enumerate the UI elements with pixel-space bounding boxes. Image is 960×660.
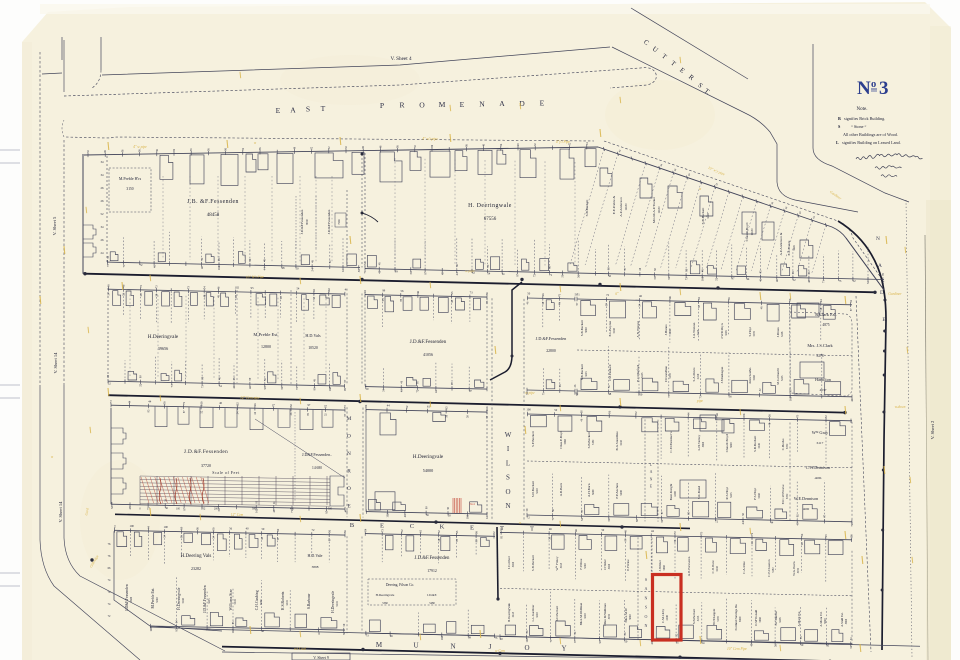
svg-text:5600: 5600 xyxy=(620,490,623,496)
svg-text:67556: 67556 xyxy=(484,217,497,222)
svg-text:5060: 5060 xyxy=(759,616,762,622)
svg-text:N: N xyxy=(347,451,351,457)
svg-text:3248: 3248 xyxy=(758,442,761,448)
svg-text:3445: 3445 xyxy=(585,371,588,377)
svg-text:26: 26 xyxy=(101,238,105,242)
svg-text:26: 26 xyxy=(101,199,105,203)
svg-text:V. Sheet 14: V. Sheet 14 xyxy=(53,352,58,374)
svg-text:w pipe: w pipe xyxy=(525,391,535,395)
svg-text:102: 102 xyxy=(525,638,529,643)
svg-text:3445: 3445 xyxy=(208,598,211,604)
svg-text:M.Preble H'rs: M.Preble H'rs xyxy=(119,176,142,181)
svg-text:H.Deeringvale: H.Deeringvale xyxy=(148,334,179,340)
svg-text:V. Sheet 14: V. Sheet 14 xyxy=(58,501,63,523)
svg-text:E: E xyxy=(460,100,465,109)
svg-text:5260: 5260 xyxy=(753,374,756,380)
svg-text:“ Stone “: “ Stone “ xyxy=(851,124,866,129)
svg-text:O: O xyxy=(419,100,425,109)
svg-text:3240: 3240 xyxy=(584,613,587,619)
svg-text:M.Preble Est.: M.Preble Est. xyxy=(253,332,278,337)
svg-text:17912: 17912 xyxy=(427,569,437,573)
svg-text:7200: 7200 xyxy=(338,219,341,225)
svg-text:10″ W′t Pipe: 10″ W′t Pipe xyxy=(246,275,265,279)
svg-text:37720: 37720 xyxy=(201,463,211,468)
svg-text:T: T xyxy=(321,104,326,113)
svg-text:A.P.Anderson &: A.P.Anderson & xyxy=(779,232,783,255)
svg-text:5245: 5245 xyxy=(560,562,563,568)
svg-text:C.A.Rine: C.A.Rine xyxy=(742,561,746,574)
svg-text:J.D.&F.Fessenden: J.D.&F.Fessenden xyxy=(410,340,447,345)
svg-text:A.H.Born: A.H.Born xyxy=(587,483,591,497)
svg-text:A: A xyxy=(499,99,505,108)
svg-text:J.D.&F.Fessenden: J.D.&F.Fessenden xyxy=(203,585,207,613)
svg-text:U: U xyxy=(413,642,418,650)
svg-text:J.Colliver: J.Colliver xyxy=(507,555,511,569)
svg-text:5245: 5245 xyxy=(697,615,700,621)
svg-text:A.Mark Est.: A.Mark Est. xyxy=(797,611,801,627)
svg-text:12800: 12800 xyxy=(261,344,271,349)
svg-text:J.W.Kilbyn: J.W.Kilbyn xyxy=(720,323,724,339)
svg-text:Mrs M.A.P.Tucker: Mrs M.A.P.Tucker xyxy=(652,196,656,223)
svg-text:J.D.&F.Fessenden: J.D.&F.Fessenden xyxy=(300,209,304,234)
svg-text:C.W.Dennison: C.W.Dennison xyxy=(806,465,831,470)
svg-text:Gardiner: Gardiner xyxy=(888,292,902,296)
svg-text:S: S xyxy=(645,605,647,610)
svg-text:5260: 5260 xyxy=(156,597,159,603)
svg-text:S.D.Beckett: S.D.Beckett xyxy=(531,481,535,497)
svg-text:102: 102 xyxy=(236,402,240,407)
svg-text:Chas.R.Boyd: Chas.R.Boyd xyxy=(745,222,749,241)
svg-text:102: 102 xyxy=(201,507,206,511)
svg-text:V. Sheet 2: V. Sheet 2 xyxy=(930,420,935,439)
svg-text:B: B xyxy=(350,522,355,529)
svg-text:S.B.Beckett: S.B.Beckett xyxy=(585,200,589,217)
svg-text:34: 34 xyxy=(101,173,105,177)
svg-text:H.Deeringvale: H.Deeringvale xyxy=(331,590,335,613)
svg-text:O: O xyxy=(347,486,351,492)
svg-text:A.H.Purvseren: A.H.Purvseren xyxy=(687,556,691,576)
svg-text:R.S.Hoyt: R.S.Hoyt xyxy=(725,487,729,500)
svg-text:A.P.Anderson: A.P.Anderson xyxy=(619,197,623,217)
svg-text:5060: 5060 xyxy=(739,616,742,622)
svg-text:V. Sheet 9: V. Sheet 9 xyxy=(313,656,329,660)
svg-text:12650: 12650 xyxy=(658,206,661,214)
svg-text:J.D.&F.Fessenden: J.D.&F.Fessenden xyxy=(327,209,331,234)
svg-text:S.F.Beckett: S.F.Beckett xyxy=(531,431,535,447)
svg-text:C.M.Libby: C.M.Libby xyxy=(661,608,665,623)
svg-text:4400: 4400 xyxy=(674,491,677,497)
svg-text:5360: 5360 xyxy=(382,602,388,605)
svg-text:W.H.Sargent: W.H.Sargent xyxy=(712,609,716,625)
svg-text:3445: 3445 xyxy=(512,611,515,617)
svg-text:5260: 5260 xyxy=(758,492,761,498)
svg-text:5260: 5260 xyxy=(512,561,515,567)
svg-text:A: A xyxy=(290,105,296,114)
svg-text:Scale of Feet: Scale of Feet xyxy=(212,470,240,475)
svg-text:5192: 5192 xyxy=(772,567,775,573)
svg-text:F.P.Rine: F.P.Rine xyxy=(579,558,583,569)
svg-text:12″ Cem: 12″ Cem xyxy=(231,513,244,517)
svg-text:102: 102 xyxy=(327,288,331,293)
svg-text:4637: 4637 xyxy=(820,388,827,392)
svg-text:B: B xyxy=(838,116,841,121)
svg-text:A.B.Born: A.B.Born xyxy=(559,483,563,496)
svg-text:M: M xyxy=(347,416,352,422)
svg-text:N: N xyxy=(645,595,648,600)
svg-text:5060: 5060 xyxy=(663,564,666,570)
svg-text:41056: 41056 xyxy=(423,352,433,357)
svg-text:S: S xyxy=(306,105,310,114)
svg-text:All other Buildings are of Woo: All other Buildings are of Wood. xyxy=(843,132,898,137)
svg-text:5192: 5192 xyxy=(592,439,595,445)
svg-text:5245: 5245 xyxy=(234,598,237,604)
svg-text:100: 100 xyxy=(700,276,704,281)
svg-text:J.Hones: J.Hones xyxy=(664,324,668,336)
svg-text:J: J xyxy=(489,643,492,651)
svg-text:R.Clark Est.: R.Clark Est. xyxy=(815,312,837,317)
svg-text:3248: 3248 xyxy=(779,617,782,623)
svg-text:Wᴹ Finley: Wᴹ Finley xyxy=(555,556,559,570)
svg-text:100: 100 xyxy=(638,393,643,397)
svg-text:10520: 10520 xyxy=(308,346,318,350)
svg-text:D.MᶜDonald: D.MᶜDonald xyxy=(754,609,758,626)
svg-text:100: 100 xyxy=(788,396,792,401)
svg-text:J.B. &F.Fessenden: J.B. &F.Fessenden xyxy=(187,199,239,205)
svg-text:H.S.Roberts: H.S.Roberts xyxy=(281,591,285,610)
svg-text:102: 102 xyxy=(386,513,390,518)
svg-text:5600: 5600 xyxy=(260,599,263,605)
svg-text:E: E xyxy=(470,524,474,531)
svg-text:8000: 8000 xyxy=(306,219,309,225)
svg-text:5192: 5192 xyxy=(786,443,789,449)
svg-text:Ellen M.Wellman: Ellen M.Wellman xyxy=(579,602,583,625)
svg-text:W.G.Davis: W.G.Davis xyxy=(792,561,796,576)
svg-text:3898: 3898 xyxy=(312,565,319,569)
svg-text:102: 102 xyxy=(231,628,235,633)
svg-text:B.F.Barthet: B.F.Barthet xyxy=(774,611,778,626)
svg-text:12″ Cem pipe: 12″ Cem pipe xyxy=(240,396,260,400)
svg-text:J.D.&F.Fessenden: J.D.&F.Fessenden xyxy=(415,556,451,561)
svg-text:N: N xyxy=(505,502,510,510)
svg-text:5245: 5245 xyxy=(336,601,339,607)
svg-text:14 680: 14 680 xyxy=(312,466,322,470)
svg-text:3150: 3150 xyxy=(126,187,133,191)
svg-text:N: N xyxy=(857,78,871,99)
svg-text:J.A.Watson: J.A.Watson xyxy=(692,322,696,338)
svg-text:4690: 4690 xyxy=(803,507,810,511)
svg-text:3248: 3248 xyxy=(669,329,672,335)
svg-text:100: 100 xyxy=(440,635,444,640)
svg-text:100: 100 xyxy=(149,627,153,632)
svg-text:S.B.Deckett: S.B.Deckett xyxy=(531,555,535,571)
svg-text:P: P xyxy=(380,101,384,110)
svg-text:5245: 5245 xyxy=(781,375,784,381)
svg-text:3248: 3248 xyxy=(781,331,784,337)
svg-text:L: L xyxy=(836,140,839,145)
svg-text:4875: 4875 xyxy=(822,323,829,327)
svg-text:J.D.&F.Fessenden: J.D.&F.Fessenden xyxy=(536,336,567,341)
svg-text:54000: 54000 xyxy=(423,468,433,473)
svg-text:S.A.Davis: S.A.Davis xyxy=(692,367,696,382)
svg-text:J.D.&F.: J.D.&F. xyxy=(427,593,437,597)
svg-text:F.P.Anchen: F.P.Anchen xyxy=(615,483,619,499)
svg-text:H.D.Vale: H.D.Vale xyxy=(308,553,323,558)
svg-text:J.M.Heskell: J.M.Heskell xyxy=(608,364,612,380)
svg-text:M: M xyxy=(439,100,446,109)
svg-text:34: 34 xyxy=(101,160,105,164)
svg-text:E.O.Harford: E.O.Harford xyxy=(636,365,640,382)
svg-text:S.B.Beckett: S.B.Beckett xyxy=(692,609,696,624)
svg-text:N: N xyxy=(450,642,455,650)
svg-text:signifies Building on Leased L: signifies Building on Leased Land. xyxy=(842,140,901,145)
svg-text:5240: 5240 xyxy=(613,327,616,333)
svg-text:100: 100 xyxy=(485,406,489,411)
svg-text:H. Deeringwale: H. Deeringwale xyxy=(468,203,512,209)
svg-text:5194: 5194 xyxy=(608,613,611,619)
svg-text:Chas.R.Boyd: Chas.R.Boyd xyxy=(725,434,729,452)
svg-text:J.Hilder: J.Hilder xyxy=(603,558,607,569)
svg-text:Y: Y xyxy=(561,645,566,653)
svg-text:52: 52 xyxy=(101,212,105,216)
svg-text:102: 102 xyxy=(235,285,240,289)
svg-text:39656: 39656 xyxy=(158,346,168,351)
svg-text:B.A.Standline: B.A.Standline xyxy=(615,431,619,451)
svg-text:J.Hibber: J.Hibber xyxy=(658,559,662,571)
svg-text:Williams Size: Williams Size xyxy=(229,589,233,611)
svg-text:5245: 5245 xyxy=(730,492,733,498)
svg-text:S.B.Beckett: S.B.Beckett xyxy=(753,436,757,452)
svg-text:.4690.: .4690. xyxy=(814,476,822,480)
svg-text:H.DeeringVale: H.DeeringVale xyxy=(507,603,511,623)
svg-text:H.Deeringvale: H.Deeringvale xyxy=(413,454,444,460)
svg-text:5060: 5060 xyxy=(845,618,848,624)
svg-text:S.K.Bond: S.K.Bond xyxy=(697,486,701,500)
svg-text:5240: 5240 xyxy=(536,488,539,494)
svg-text:23282: 23282 xyxy=(191,566,201,571)
svg-text:100: 100 xyxy=(328,386,332,391)
svg-text:S.B.Beckett: S.B.Beckett xyxy=(580,364,584,380)
svg-text:100: 100 xyxy=(217,265,221,270)
svg-text:T: T xyxy=(530,526,534,533)
svg-text:A.Mora Ed.: A.Mora Ed. xyxy=(819,611,823,626)
svg-text:100: 100 xyxy=(130,524,135,528)
svg-text:C.H.Hunt: C.H.Hunt xyxy=(711,560,715,573)
svg-text:M.G.Doorill: M.G.Doorill xyxy=(776,368,780,385)
svg-text:V. Sheet 5: V. Sheet 5 xyxy=(52,216,57,235)
svg-text:O: O xyxy=(524,644,529,652)
svg-text:F.S.Hoyt: F.S.Hoyt xyxy=(753,488,757,500)
svg-text:Wᴹ Gray: Wᴹ Gray xyxy=(812,430,829,435)
svg-text:4″ w pipe: 4″ w pipe xyxy=(133,145,147,149)
svg-text:S.D.Beckett: S.D.Beckett xyxy=(555,606,559,622)
svg-text:A: A xyxy=(650,470,653,474)
svg-text:N: N xyxy=(876,236,880,242)
svg-text:3445: 3445 xyxy=(286,600,289,606)
svg-text:w pipe: w pipe xyxy=(465,269,475,273)
svg-text:V. Sheet 4: V. Sheet 4 xyxy=(390,56,411,62)
svg-text:C.H.Cushing: C.H.Cushing xyxy=(255,590,259,610)
svg-text:3: 3 xyxy=(879,78,889,99)
svg-text:W.E.Dennison: W.E.Dennison xyxy=(794,496,819,501)
svg-text:4″ w′t pipe: 4″ w′t pipe xyxy=(422,137,438,141)
svg-text:22800: 22800 xyxy=(546,349,556,353)
svg-text:H.D.Vals: H.D.Vals xyxy=(305,333,321,338)
svg-text:N: N xyxy=(479,100,485,109)
svg-text:O: O xyxy=(347,434,351,440)
svg-text:102: 102 xyxy=(206,628,211,632)
svg-text:S.B.Beckett: S.B.Beckett xyxy=(580,320,584,336)
svg-text:Portland Savings Bᴃ: Portland Savings Bᴃ xyxy=(734,604,738,631)
svg-text:L.L.Gardiner: L.L.Gardiner xyxy=(531,604,535,622)
svg-text:w.down: w.down xyxy=(895,405,906,409)
svg-text:E.E.Preble: E.E.Preble xyxy=(787,240,791,255)
svg-text:H.Deeringvale: H.Deeringvale xyxy=(177,587,181,610)
svg-text:5060: 5060 xyxy=(564,438,567,444)
svg-text:D.Goodhue: D.Goodhue xyxy=(664,366,668,382)
svg-text:10″ Cem Pipe: 10″ Cem Pipe xyxy=(727,647,747,651)
svg-text:S: S xyxy=(506,474,510,482)
svg-text:26: 26 xyxy=(101,186,105,190)
svg-text:5240: 5240 xyxy=(182,597,185,603)
svg-text:signifies Brick Building.: signifies Brick Building. xyxy=(844,116,885,121)
svg-text:w Cem: w Cem xyxy=(495,649,505,653)
svg-text:L.H.Varney: L.H.Varney xyxy=(697,434,701,450)
svg-text:John SeaBo: John SeaBo xyxy=(748,367,752,383)
svg-text:5260: 5260 xyxy=(608,563,611,569)
svg-text:E: E xyxy=(276,106,281,115)
svg-text:N: N xyxy=(645,623,648,628)
svg-text:34: 34 xyxy=(101,225,105,229)
svg-text:E: E xyxy=(540,99,545,108)
svg-text:J.Rines: J.Rines xyxy=(776,327,780,338)
svg-text:3240: 3240 xyxy=(697,373,700,379)
svg-text:5192: 5192 xyxy=(717,616,720,622)
svg-text:R: R xyxy=(347,469,351,475)
svg-text:No4: No4 xyxy=(469,502,475,506)
svg-text:5060: 5060 xyxy=(585,327,588,333)
svg-text:3240: 3240 xyxy=(620,440,623,446)
svg-text:5260: 5260 xyxy=(584,563,587,569)
svg-text:Chas.E.Boyd: Chas.E.Boyd xyxy=(559,430,563,448)
svg-text:E.E.Preble &: E.E.Preble & xyxy=(612,195,616,214)
svg-text:L: L xyxy=(506,459,510,467)
svg-text:S.Hoyt: S.Hoyt xyxy=(748,327,752,337)
svg-text:5278: 5278 xyxy=(816,354,823,358)
svg-text:Note.: Note. xyxy=(857,107,868,112)
svg-text:w.t Coal: w.t Coal xyxy=(294,647,306,651)
svg-text:Ellen M.Wellman: Ellen M.Wellman xyxy=(603,603,607,626)
svg-text:12650: 12650 xyxy=(625,203,628,211)
svg-text:Ellen M.W.: Ellen M.W. xyxy=(624,608,628,623)
svg-text:100: 100 xyxy=(199,401,203,406)
svg-text:3248: 3248 xyxy=(725,330,728,336)
svg-text:N: N xyxy=(650,477,653,481)
svg-text:12650: 12650 xyxy=(751,228,754,236)
svg-text:H.Deeringvale: H.Deeringvale xyxy=(376,593,395,597)
svg-text:S: S xyxy=(645,577,647,582)
svg-text:C.E.Classton: C.E.Classton xyxy=(767,559,771,577)
svg-text:M.Preble Est.: M.Preble Est. xyxy=(151,588,155,609)
svg-text:A: A xyxy=(645,586,648,591)
svg-text:Bent.Knight: Bent.Knight xyxy=(669,484,673,501)
svg-text:100: 100 xyxy=(850,534,854,539)
svg-text:O: O xyxy=(505,488,510,496)
svg-text:4400: 4400 xyxy=(666,614,669,620)
svg-text:5060: 5060 xyxy=(730,442,733,448)
svg-text:5600: 5600 xyxy=(130,596,133,602)
svg-text:100: 100 xyxy=(526,408,531,412)
svg-text:5192: 5192 xyxy=(753,330,756,336)
svg-text:M: M xyxy=(376,641,383,649)
svg-text:W: W xyxy=(505,431,512,439)
svg-text:C.Hecks: C.Hecks xyxy=(781,438,785,450)
svg-text:S.Barbour: S.Barbour xyxy=(307,593,311,609)
svg-text:100: 100 xyxy=(164,525,169,529)
svg-text:3445: 3445 xyxy=(697,329,700,335)
svg-text:E.F.Rine: E.F.Rine xyxy=(626,559,630,571)
svg-text:5194: 5194 xyxy=(797,567,800,573)
svg-text:5192: 5192 xyxy=(786,493,789,499)
svg-text:3240: 3240 xyxy=(716,566,719,572)
svg-text:3240: 3240 xyxy=(536,612,539,618)
svg-text:H.Deering Vals: H.Deering Vals xyxy=(181,554,212,559)
svg-text:100: 100 xyxy=(466,514,470,519)
svg-text:6″: 6″ xyxy=(615,292,619,296)
svg-text:3445: 3445 xyxy=(641,372,644,378)
svg-text:E.L.Boylan: E.L.Boylan xyxy=(608,321,612,337)
svg-text:5192: 5192 xyxy=(669,373,672,379)
svg-text:O: O xyxy=(645,614,648,619)
svg-text:5480: 5480 xyxy=(429,602,435,605)
svg-text:C: C xyxy=(410,523,415,530)
svg-text:3445: 3445 xyxy=(793,245,796,251)
svg-text:J.Monkague: J.Monkague xyxy=(720,366,724,383)
svg-text:4″y′t Pipe: 4″y′t Pipe xyxy=(556,140,571,144)
svg-text:S.B.Beckett: S.B.Beckett xyxy=(587,432,591,448)
svg-text:J.D&F.Fessenden: J.D&F.Fessenden xyxy=(125,584,129,611)
svg-text:E: E xyxy=(380,522,384,529)
svg-text:o: o xyxy=(871,79,876,90)
svg-text:5600: 5600 xyxy=(592,489,595,495)
svg-text:5060: 5060 xyxy=(824,618,827,624)
svg-text:24: 24 xyxy=(101,251,105,255)
svg-text:K: K xyxy=(440,524,445,531)
svg-text:A.N.Watson: A.N.Watson xyxy=(636,321,640,338)
svg-text:5060: 5060 xyxy=(629,614,632,620)
svg-text:pipe: pipe xyxy=(696,399,704,403)
svg-text:M.C.W.Freeve: M.C.W.Freeve xyxy=(781,484,785,504)
svg-text:J.D.&F.Fessenden: J.D.&F.Fessenden xyxy=(184,449,228,455)
svg-text:6117: 6117 xyxy=(817,441,824,445)
svg-text:C.M.Pummer’s: C.M.Pummer’s xyxy=(669,431,673,453)
svg-text:Mrs. J.S.Clark: Mrs. J.S.Clark xyxy=(807,343,833,348)
svg-text:5060: 5060 xyxy=(702,441,705,447)
svg-text:A.Stall Est.: A.Stall Est. xyxy=(840,612,844,627)
